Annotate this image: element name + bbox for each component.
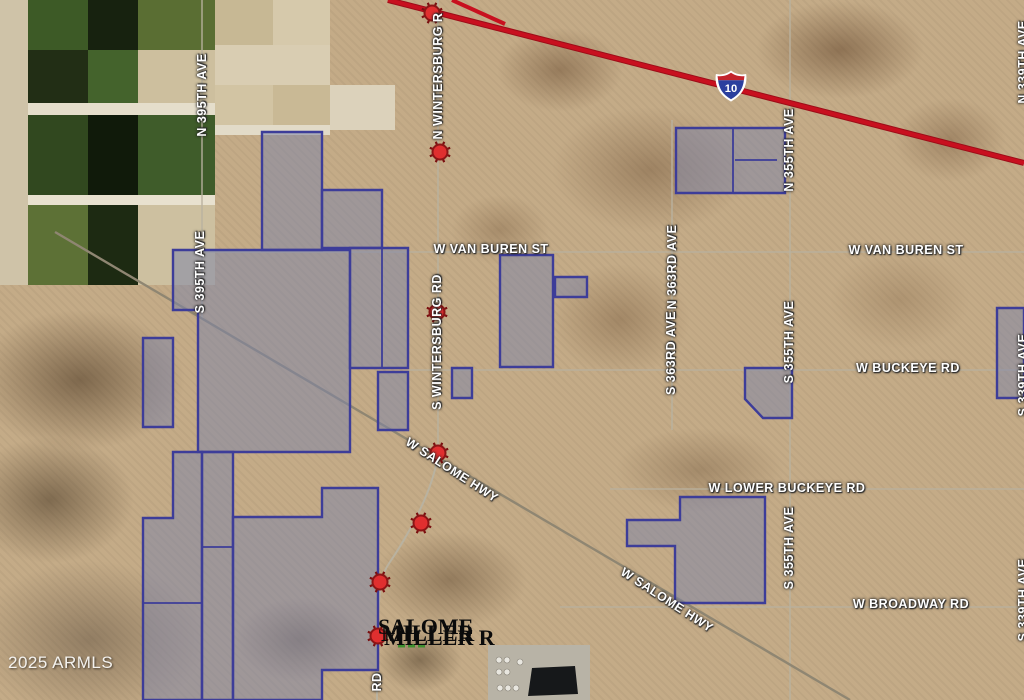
parcel-polygon[interactable] <box>322 190 382 248</box>
farm-field <box>138 0 215 50</box>
road-label: S 355TH AVE <box>782 507 796 590</box>
farm-field <box>28 0 88 50</box>
industrial-tank <box>505 685 511 691</box>
industrial-tank <box>496 657 502 663</box>
road-label: S 339TH AVE <box>1016 559 1024 642</box>
industrial-tank <box>504 669 510 675</box>
listing-marker[interactable] <box>411 513 431 533</box>
industrial-tank <box>513 685 519 691</box>
interstate-10-shield: 10 <box>715 70 747 102</box>
farm-field <box>273 0 330 45</box>
listing-marker[interactable] <box>430 142 450 162</box>
parcel-polygon[interactable] <box>143 338 173 427</box>
road-label: N 339TH AVE <box>1016 20 1024 103</box>
farm-field <box>88 205 138 285</box>
farm-field <box>28 103 215 115</box>
road-label: S 363RD AVE <box>664 311 678 395</box>
farm-field <box>28 115 88 195</box>
industrial-tank <box>517 659 523 665</box>
road-label: S WINTERSBURG RD <box>430 274 444 410</box>
road-label: RD <box>370 672 384 691</box>
farm-field <box>88 50 138 103</box>
farm-field <box>88 0 138 50</box>
parcel-polygon[interactable] <box>350 248 408 368</box>
map-overlay-layer <box>0 0 1024 700</box>
parcel-polygon[interactable] <box>262 132 322 250</box>
farm-field <box>330 85 395 130</box>
farm-field <box>28 195 215 205</box>
interstate-route-number: 10 <box>725 83 737 95</box>
road-label: W VAN BUREN ST <box>433 242 548 256</box>
industrial-tank <box>496 669 502 675</box>
parcel-polygon[interactable] <box>378 372 408 430</box>
road-label: W VAN BUREN ST <box>848 243 963 257</box>
farm-field <box>215 85 273 130</box>
road-label: N 395TH AVE <box>195 53 209 136</box>
marker-dot[interactable] <box>373 575 388 590</box>
road-label: W BUCKEYE RD <box>856 361 960 375</box>
stacked-label-word: MILLER R <box>384 627 495 649</box>
parcel-polygon[interactable] <box>555 277 587 297</box>
road-label: N 355TH AVE <box>782 108 796 191</box>
road-label: W LOWER BUCKEYE RD <box>709 481 866 495</box>
industrial-tank <box>497 685 503 691</box>
road-label: W BROADWAY RD <box>853 597 969 611</box>
farm-field <box>215 0 273 45</box>
farm-field <box>28 50 88 103</box>
industrial-pond <box>528 666 578 696</box>
satellite-map[interactable]: N WINTERSBURG RS WINTERSBURG RDRDN 395TH… <box>0 0 1024 700</box>
parcel-polygon[interactable] <box>143 452 202 700</box>
parcel-polygon[interactable] <box>233 488 378 700</box>
road-label: S 339TH AVE <box>1016 334 1024 417</box>
farm-field <box>273 85 330 130</box>
farm-field <box>215 45 330 85</box>
road-label: S 395TH AVE <box>193 231 207 314</box>
road-label: S 355TH AVE <box>782 301 796 384</box>
farm-field <box>88 115 138 195</box>
parcel-polygon[interactable] <box>500 255 553 367</box>
marker-dot[interactable] <box>433 145 448 160</box>
road-label: N WINTERSBURG R <box>431 13 445 140</box>
parcel-polygon[interactable] <box>452 368 472 398</box>
industrial-tank <box>504 657 510 663</box>
copyright-text: 2025 ARMLS <box>8 653 113 673</box>
marker-dot[interactable] <box>414 516 429 531</box>
parcel-polygon[interactable] <box>202 452 233 700</box>
road-label: N 363RD AVE <box>665 225 679 310</box>
